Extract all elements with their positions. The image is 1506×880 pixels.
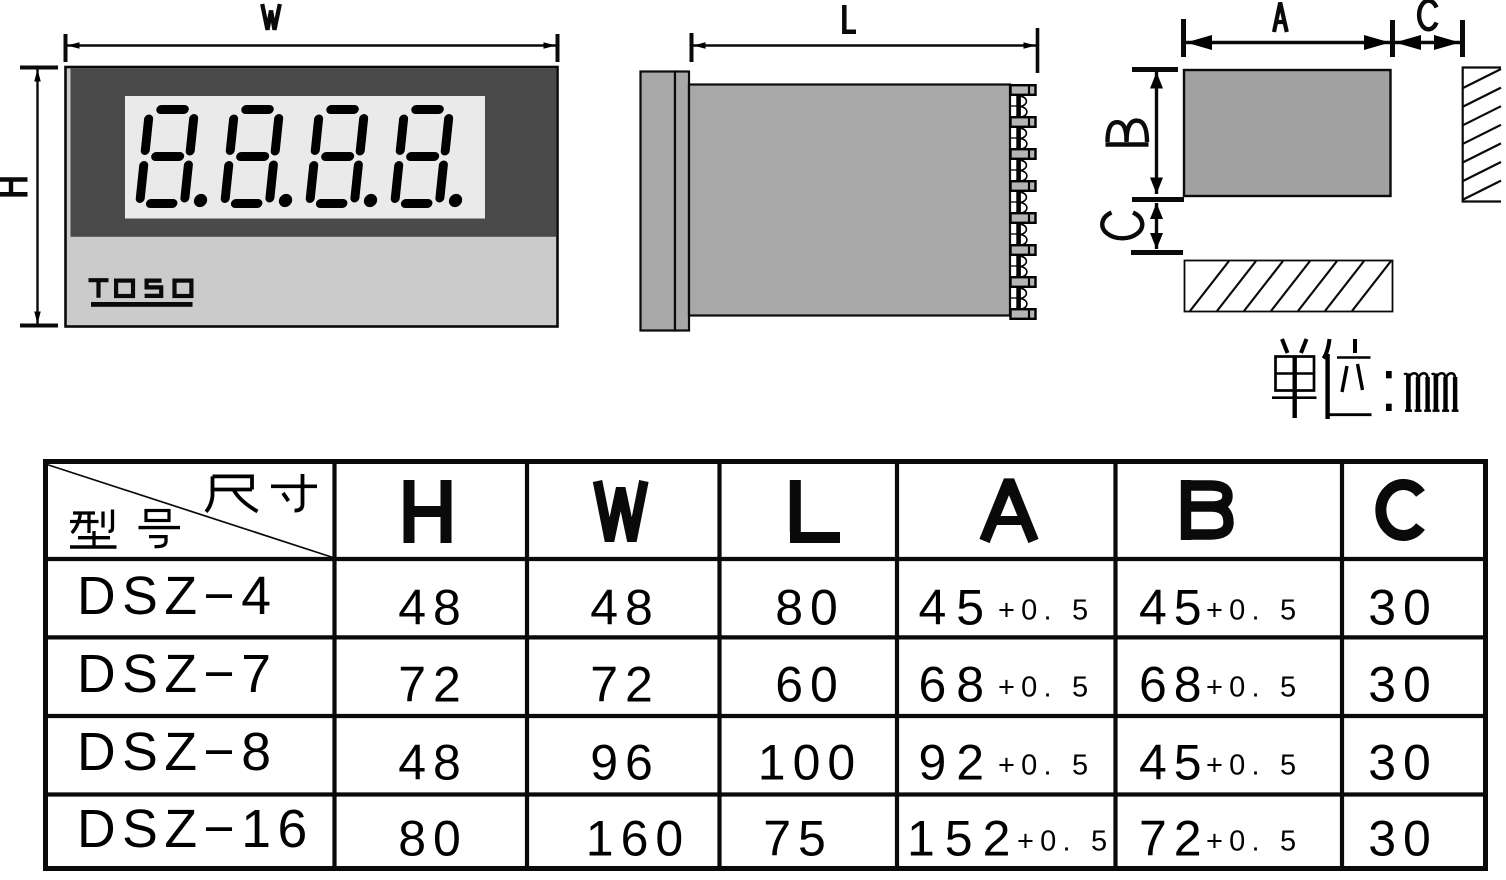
svg-text:72: 72 (398, 657, 468, 713)
svg-text:75: 75 (763, 811, 833, 867)
svg-text:30: 30 (1368, 811, 1438, 867)
svg-text:152: 152 (907, 811, 1020, 867)
svg-text:48: 48 (398, 735, 468, 791)
svg-text:68: 68 (1139, 657, 1209, 713)
svg-text:+0. 5: +0. 5 (1206, 595, 1302, 627)
svg-text:DSZ−8: DSZ−8 (77, 723, 278, 782)
svg-text:160: 160 (586, 811, 690, 867)
svg-text:45: 45 (919, 580, 995, 636)
svg-text:30: 30 (1368, 657, 1438, 713)
svg-text:72: 72 (1139, 811, 1209, 867)
svg-text:30: 30 (1368, 580, 1438, 636)
svg-text:92: 92 (919, 735, 995, 791)
svg-text:DSZ−16: DSZ−16 (77, 800, 314, 859)
svg-text:80: 80 (775, 580, 845, 636)
svg-text:+0. 5: +0. 5 (998, 750, 1094, 782)
svg-text:+0. 5: +0. 5 (1206, 672, 1302, 704)
svg-text:48: 48 (590, 580, 660, 636)
svg-text:+0. 5: +0. 5 (1206, 826, 1302, 858)
svg-text:+0. 5: +0. 5 (998, 595, 1094, 627)
svg-text:80: 80 (398, 811, 468, 867)
svg-text:+0. 5: +0. 5 (1017, 826, 1113, 858)
svg-text:DSZ−4: DSZ−4 (77, 567, 278, 626)
svg-text:+0. 5: +0. 5 (1206, 750, 1302, 782)
svg-text:45: 45 (1139, 580, 1209, 636)
svg-text:72: 72 (590, 657, 660, 713)
svg-text:DSZ−7: DSZ−7 (77, 645, 278, 704)
svg-text:60: 60 (775, 657, 845, 713)
svg-text:48: 48 (398, 580, 468, 636)
svg-text:45: 45 (1139, 735, 1209, 791)
svg-text:68: 68 (919, 657, 995, 713)
svg-text:30: 30 (1368, 735, 1438, 791)
svg-text:100: 100 (758, 735, 862, 791)
svg-text:+0. 5: +0. 5 (998, 672, 1094, 704)
svg-text:96: 96 (590, 735, 660, 791)
